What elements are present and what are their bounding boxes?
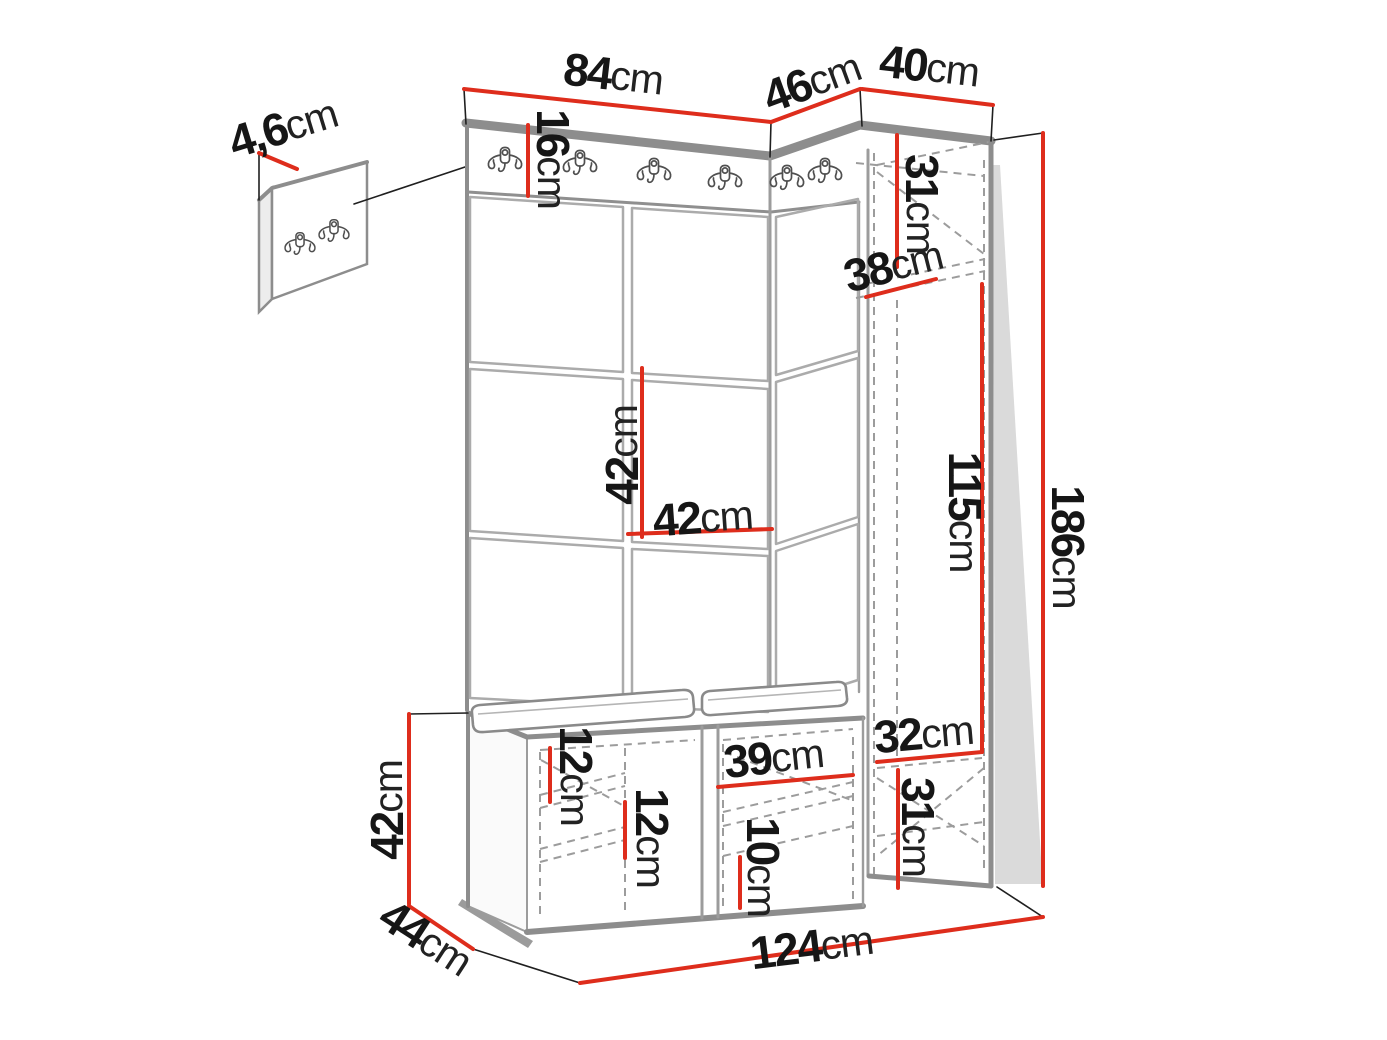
coat-hook-icon (708, 166, 741, 190)
label-top-width-40: 40cm (877, 35, 982, 98)
label-cabinet-depth-38: 38cm (838, 228, 947, 303)
label-strip-height-16: 16cm (527, 109, 579, 209)
detail-callout-line (354, 166, 468, 204)
extension-line (464, 89, 466, 124)
coat-hook-icon (808, 159, 841, 183)
extension-line (770, 122, 771, 157)
extension-line (860, 89, 862, 126)
extension-line (409, 713, 468, 714)
furniture-dimension-diagram: 4,6cm 84cm 46cm 40cm 16cm 31cm 38cm 42cm… (0, 0, 1387, 1040)
label-top-width-46: 46cm (756, 40, 868, 123)
label-total-width-124: 124cm (747, 913, 876, 980)
label-cabinet-inner-115: 115cm (939, 452, 991, 573)
extension-line (997, 887, 1043, 917)
cabinet-bottom-edge (869, 876, 991, 886)
label-panel-thickness: 4,6cm (222, 86, 343, 168)
detail-panel-side-face (259, 188, 272, 312)
coat-hook-icon (488, 148, 521, 172)
coat-hook-icon (637, 159, 670, 183)
label-shelf-gap-12b: 12cm (626, 788, 678, 888)
extension-line (473, 949, 580, 983)
label-shelf-gap-10: 10cm (737, 817, 789, 917)
bench-left-face (468, 713, 527, 932)
hook-panel-detail (259, 153, 468, 312)
label-top-width-84: 84cm (561, 43, 666, 106)
extension-line (994, 133, 1043, 140)
label-tile-height-42: 42cm (596, 405, 648, 505)
coat-hook-icon (770, 166, 803, 190)
label-bench-height-42: 42cm (361, 760, 413, 860)
label-shelf-gap-12a: 12cm (550, 726, 602, 826)
extension-line (991, 105, 993, 141)
label-total-height-186: 186cm (1042, 485, 1094, 608)
label-tile-width-42: 42cm (651, 488, 754, 547)
label-cabinet-bottom-31: 31cm (892, 777, 944, 877)
cabinet-side-shadow (993, 165, 1041, 884)
dimension-diagram-page: 4,6cm 84cm 46cm 40cm 16cm 31cm 38cm 42cm… (0, 0, 1387, 1040)
upholstered-tiles (470, 197, 858, 712)
